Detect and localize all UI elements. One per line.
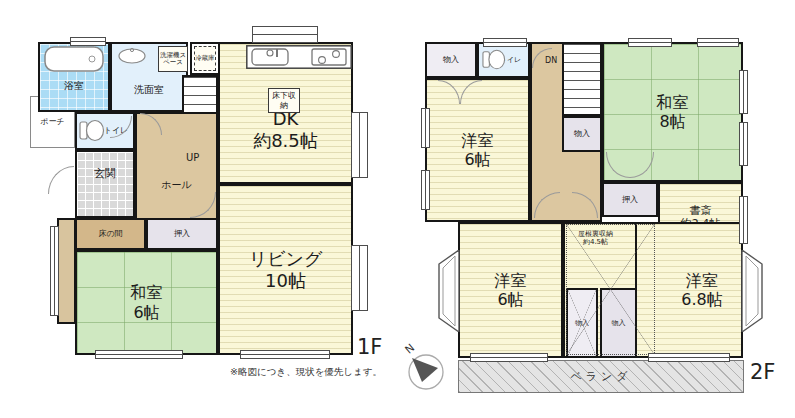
closet-label-1f: 押入	[174, 229, 190, 239]
yoshitsu-bl-label: 洋室6帖	[495, 271, 527, 309]
porch-label: ポーチ	[40, 117, 64, 127]
washbasin-icon	[116, 46, 148, 64]
washitsu-1f: 和室6帖	[75, 250, 218, 355]
window-living-right	[351, 245, 368, 311]
entrance-door-arc	[48, 166, 74, 194]
stairs-up-label: UP	[186, 152, 199, 164]
underfloor-storage-label: 床下収納	[269, 91, 299, 109]
dk-label: DK約8.5帖	[253, 108, 318, 151]
tokonoma: 床の間	[75, 218, 146, 250]
storage-tl-label: 物入	[443, 55, 459, 65]
storage-top-left-2f: 物入	[425, 42, 477, 78]
window-2f-top1	[483, 38, 527, 47]
yoshitsu-bottom-left: 洋室6帖	[458, 222, 563, 358]
yoshitsu-br-label: 洋室6.8帖	[681, 271, 722, 309]
fridge-box: 冷蔵庫	[194, 46, 216, 71]
compass-icon: N	[398, 340, 450, 394]
kitchen-counter-icon	[246, 45, 352, 69]
engawa-strip	[57, 218, 76, 324]
bay-window-left	[438, 250, 460, 332]
veranda-label: ベランダ	[570, 370, 631, 383]
entrance-label: 玄関	[94, 167, 116, 180]
window-washitsu-bottom	[95, 350, 183, 359]
window-living-bottom	[240, 350, 330, 359]
window-dk-top	[252, 26, 318, 43]
window-2f-bottom2	[648, 353, 730, 362]
washitsu-label-1f: 和室6帖	[131, 283, 163, 321]
toilet-icon-1f	[79, 118, 105, 143]
disclaimer-note: ※略図につき、現状を優先します。	[230, 367, 382, 378]
window-study-right	[739, 196, 748, 244]
window-2f-left1	[421, 108, 430, 148]
window-2f-bottom1	[470, 353, 548, 362]
window-dk-right	[351, 112, 368, 178]
entrance: 玄関	[75, 150, 135, 218]
window-bath-top	[70, 37, 106, 46]
laundry-space-label: 洗濯機スペース	[159, 52, 187, 67]
underfloor-storage-box: 床下収納	[268, 88, 300, 113]
attic-storage-label: 屋根裏収納約4.5帖	[578, 230, 613, 246]
floor1-tag: 1F	[357, 335, 382, 359]
fridge-label: 冷蔵庫	[195, 55, 215, 62]
laundry-space-box: 洗濯機スペース	[158, 46, 188, 72]
washitsu-label-2f: 和室8帖	[657, 93, 689, 131]
storage-mid-label: 物入	[574, 129, 590, 139]
veranda: ベランダ	[458, 360, 744, 393]
closet-1f: 押入	[146, 218, 218, 250]
closet-2f: 押入	[602, 182, 658, 217]
window-2f-top2	[628, 38, 672, 47]
living-label: リビング10帖	[249, 248, 323, 291]
bath-label: 浴室	[64, 80, 84, 92]
floor2-tag: 2F	[750, 360, 775, 384]
living-room: リビング10帖	[218, 184, 353, 355]
stairs-2f	[562, 42, 602, 116]
washroom-label: 洗面室	[134, 84, 164, 96]
yoshitsu-tl-label: 洋室6帖	[462, 131, 494, 169]
window-2f-right1	[739, 70, 748, 114]
hall-label: ホール	[161, 179, 191, 191]
floorplan-canvas: ポーチ 浴室 洗面室 洗濯機スペース 冷蔵庫 DK約8.	[0, 0, 795, 418]
window-2f-left2	[421, 170, 430, 210]
stairs-dn-label: DN	[545, 56, 557, 65]
tokonoma-label: 床の間	[98, 229, 122, 239]
closet-label-2f: 押入	[622, 195, 638, 205]
toilet-icon-2f	[482, 48, 506, 71]
bathtub-icon	[44, 46, 104, 72]
bay-window-right	[741, 250, 763, 332]
storage-mid-2f: 物入	[562, 116, 602, 152]
window-2f-right2	[739, 122, 748, 166]
compass-n-label: N	[403, 341, 418, 356]
window-engawa-left	[50, 226, 59, 316]
window-2f-top3	[697, 38, 739, 47]
